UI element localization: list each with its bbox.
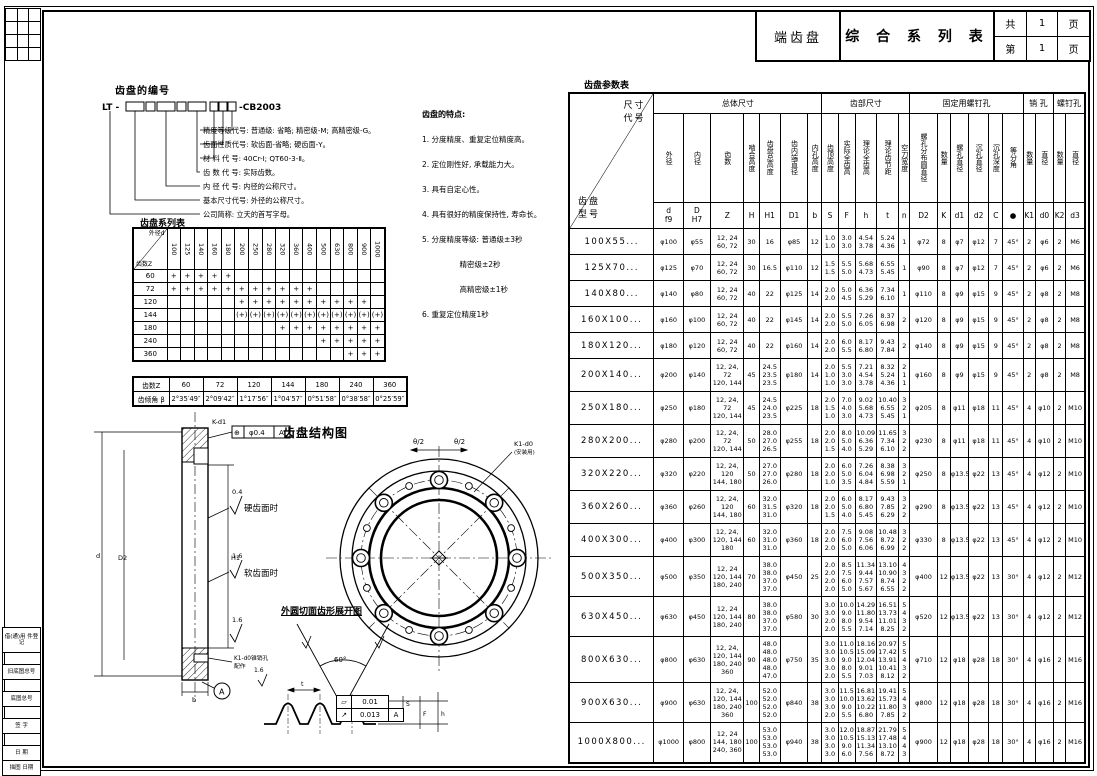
cell bbox=[371, 270, 385, 283]
series-corner-cell: 外径d 齿数Z bbox=[133, 228, 167, 270]
cell: 8 bbox=[937, 425, 950, 458]
cell: 5.24 4.36 bbox=[876, 229, 898, 255]
revision-grid bbox=[5, 8, 41, 61]
code-desc: 齿面性质代号: 软齿面-省略; 硬齿面-Y。 bbox=[203, 140, 330, 149]
cell: φ630 bbox=[683, 683, 710, 723]
series-col: 160 bbox=[208, 228, 222, 270]
cell: 12 bbox=[937, 683, 950, 723]
pin-hole-note2: 配作 bbox=[234, 662, 246, 670]
cell: M10 bbox=[1066, 458, 1085, 491]
cell: + bbox=[167, 270, 181, 283]
cell bbox=[208, 335, 222, 348]
runout-datum: A bbox=[388, 708, 404, 722]
cell: 120 bbox=[237, 377, 271, 392]
cell bbox=[262, 270, 276, 283]
cell: 45° bbox=[1003, 392, 1023, 425]
cell: 3 2 1 bbox=[899, 392, 910, 425]
cell bbox=[276, 335, 290, 348]
cell: φ320 bbox=[654, 458, 683, 491]
col-header: 内孔高度 bbox=[808, 113, 822, 202]
cell: 12.0 10.5 9.0 6.0 bbox=[838, 723, 855, 763]
cell: M10 bbox=[1066, 425, 1085, 458]
cell: + bbox=[303, 296, 317, 309]
flatness-symbol: ▱ bbox=[336, 695, 352, 709]
cell bbox=[371, 283, 385, 296]
cell: 2 bbox=[1054, 392, 1066, 425]
cell: 45° bbox=[1003, 359, 1023, 392]
cell: φ22 bbox=[969, 491, 989, 524]
margin-block: 描图 日期 bbox=[2, 760, 41, 776]
col-header: 直径 bbox=[1066, 113, 1085, 202]
table-row: 280X200...φ280φ20012, 24, 72 120, 144502… bbox=[569, 425, 1085, 458]
cell: 5.5 3.0 3.0 bbox=[838, 359, 855, 392]
cell: 9 bbox=[989, 307, 1003, 333]
cell bbox=[208, 322, 222, 335]
structure-callout: K1-d0 bbox=[514, 440, 533, 448]
cell: 2 bbox=[1023, 307, 1035, 333]
k-d1-label: K-d1 bbox=[212, 418, 226, 426]
cell: φ400 bbox=[654, 524, 683, 557]
cell: + bbox=[357, 335, 371, 348]
cell: + bbox=[371, 335, 385, 348]
position-symbol: ⊕ bbox=[234, 429, 240, 437]
symbol-cell: t bbox=[876, 202, 898, 228]
cell: 4 bbox=[1023, 491, 1035, 524]
cell: φ18 bbox=[950, 723, 968, 763]
cell: 2 bbox=[1054, 229, 1066, 255]
cell: φ11 bbox=[950, 425, 968, 458]
cell: 8 bbox=[937, 491, 950, 524]
cell: 45° bbox=[1003, 524, 1023, 557]
page-current-row: 第 1 页 bbox=[995, 37, 1089, 61]
cell: 45° bbox=[1003, 281, 1023, 307]
cell: φ12 bbox=[1035, 458, 1053, 491]
cell bbox=[194, 296, 208, 309]
page-info: 共 1 页 第 1 页 bbox=[995, 12, 1089, 60]
cell bbox=[344, 270, 358, 283]
row-header-cell: 360X260... bbox=[569, 491, 654, 524]
param-corner-top: 尺寸 代号 bbox=[623, 100, 645, 126]
cell bbox=[249, 322, 263, 335]
row-header-cell: 250X180... bbox=[569, 392, 654, 425]
cell: 12 bbox=[808, 229, 822, 255]
cell: 9.43 7.84 bbox=[876, 333, 898, 359]
cell: + bbox=[330, 322, 344, 335]
cell bbox=[221, 348, 235, 362]
cell: φ140 bbox=[654, 281, 683, 307]
series-col: 250 bbox=[249, 228, 263, 270]
cell: 8 bbox=[937, 359, 950, 392]
cell: 30° bbox=[1003, 637, 1023, 683]
position-tolerance: φ0.4 bbox=[249, 429, 265, 437]
cell: 32.0 31.0 31.0 bbox=[759, 524, 780, 557]
cell: φ200 bbox=[683, 425, 710, 458]
margin-block: 签 字 bbox=[2, 718, 41, 734]
cell: 2 bbox=[1054, 255, 1066, 281]
cell: 8.38 6.98 5.59 bbox=[876, 458, 898, 491]
soft-face-label: 软齿面时 bbox=[244, 568, 279, 579]
cell: M8 bbox=[1066, 359, 1085, 392]
cell bbox=[289, 348, 303, 362]
cell: 3 2 2 bbox=[899, 491, 910, 524]
table-row: 200X140...φ200φ14012, 24, 72 120, 144452… bbox=[569, 359, 1085, 392]
cell: 10.40 6.55 5.45 bbox=[876, 392, 898, 425]
feature-item: 3. 具有自定心性。 bbox=[422, 184, 587, 197]
row-header-cell: 400X300... bbox=[569, 524, 654, 557]
cell: (+) bbox=[289, 309, 303, 322]
cell: φ9 bbox=[950, 307, 968, 333]
cell: φ28 bbox=[969, 683, 989, 723]
cell: 30° bbox=[1003, 683, 1023, 723]
cell: φ280 bbox=[780, 458, 807, 491]
cell: φ100 bbox=[683, 307, 710, 333]
cell: 60 bbox=[169, 377, 203, 392]
cell: 0°38′58″ bbox=[339, 392, 373, 407]
cell: + bbox=[317, 322, 331, 335]
cell: 1 bbox=[899, 255, 910, 281]
cell: φ800 bbox=[654, 637, 683, 683]
cell: φ360 bbox=[654, 491, 683, 524]
cell: 2 bbox=[1054, 637, 1066, 683]
cell: + bbox=[235, 296, 249, 309]
row-header-cell: 72 bbox=[133, 283, 167, 296]
cell: 2.0 2.0 2.0 bbox=[822, 524, 838, 557]
cell: φ13.5 bbox=[950, 524, 968, 557]
cell: φ8 bbox=[1035, 281, 1053, 307]
cell bbox=[181, 309, 195, 322]
col-header: 齿盘总高度 bbox=[759, 113, 780, 202]
symbol-cell: H1 bbox=[759, 202, 780, 228]
cell: 50 bbox=[744, 425, 759, 458]
cell: 4 bbox=[1023, 683, 1035, 723]
cell: 18 bbox=[808, 524, 822, 557]
cell: φ180 bbox=[683, 392, 710, 425]
col-header: 齿顶高度 bbox=[822, 113, 838, 202]
cell: 1°17′56″ bbox=[237, 392, 271, 407]
cell: 5 5 4 3 2 bbox=[899, 637, 910, 683]
cell: φ13.5 bbox=[950, 458, 968, 491]
cell: φ500 bbox=[654, 557, 683, 597]
cell: φ12 bbox=[1035, 524, 1053, 557]
margin-block: 借(通)用 件登记 bbox=[2, 627, 41, 653]
symbol-cell: F bbox=[838, 202, 855, 228]
cell: φ12 bbox=[969, 229, 989, 255]
cell: 2.0 2.0 bbox=[822, 307, 838, 333]
cell: φ450 bbox=[683, 597, 710, 637]
cell: 11.65 7.34 6.10 bbox=[876, 425, 898, 458]
cell: φ290 bbox=[910, 491, 937, 524]
cell: 53.0 53.0 53.0 53.0 bbox=[759, 723, 780, 763]
cell: 38.0 38.0 37.0 37.0 bbox=[759, 557, 780, 597]
dim-f-label: F bbox=[423, 711, 427, 718]
table-row: 360+++ bbox=[133, 348, 385, 362]
cell: 9.08 7.56 6.06 bbox=[855, 524, 876, 557]
cell: + bbox=[289, 283, 303, 296]
table-row: 125X70...φ125φ7012, 24 60, 723016.5φ1101… bbox=[569, 255, 1085, 281]
table-row: 320X220...φ320φ22012, 24, 120 144, 18050… bbox=[569, 458, 1085, 491]
row-header-cell: 500X350... bbox=[569, 557, 654, 597]
structure-callout-note: (安装用) bbox=[514, 448, 535, 456]
cell: φ22 bbox=[969, 524, 989, 557]
cell bbox=[181, 296, 195, 309]
cell bbox=[330, 348, 344, 362]
cell: 4 bbox=[1023, 557, 1035, 597]
cell: 38.0 38.0 37.0 37.0 bbox=[759, 597, 780, 637]
cell: φ120 bbox=[683, 333, 710, 359]
cell bbox=[357, 283, 371, 296]
cell: 13 bbox=[989, 557, 1003, 597]
col-header: 等分角 bbox=[1003, 113, 1023, 202]
cell: 30 bbox=[744, 255, 759, 281]
runout-symbol: ↗ bbox=[336, 708, 352, 722]
cell bbox=[303, 335, 317, 348]
cell: φ8 bbox=[1035, 307, 1053, 333]
cell: 8 bbox=[937, 255, 950, 281]
table-row: 144(+)(+)(+)(+)(+)(+)(+)(+)(+)(+)(+) bbox=[133, 309, 385, 322]
cell: φ12 bbox=[1035, 597, 1053, 637]
cell bbox=[167, 348, 181, 362]
margin-block: 旧底图总号 bbox=[2, 664, 41, 680]
cell: 4 3 2 2 bbox=[899, 557, 910, 597]
cell: φ13.5 bbox=[950, 557, 968, 597]
pages-unit: 页 bbox=[1057, 12, 1089, 36]
cell: 3.0 3.0 2.0 2.0 bbox=[822, 597, 838, 637]
cell: M10 bbox=[1066, 491, 1085, 524]
cell: φ125 bbox=[654, 255, 683, 281]
cell bbox=[167, 335, 181, 348]
cell: φ80 bbox=[683, 281, 710, 307]
cell: 2.0 2.0 1.5 bbox=[822, 491, 838, 524]
cell: 2 bbox=[1023, 255, 1035, 281]
symbol-cell: d1 bbox=[950, 202, 968, 228]
cell bbox=[181, 322, 195, 335]
cell: + bbox=[221, 270, 235, 283]
cell bbox=[208, 348, 222, 362]
dim-h-label: h bbox=[441, 711, 445, 718]
theta-half-left: θ/2 bbox=[413, 438, 424, 446]
cell: M6 bbox=[1066, 255, 1085, 281]
cell: 30 bbox=[744, 229, 759, 255]
cell: φ220 bbox=[683, 458, 710, 491]
cell: φ6 bbox=[1035, 229, 1053, 255]
row-header-cell: 180X120... bbox=[569, 333, 654, 359]
series-col: 1000 bbox=[371, 228, 385, 270]
cell: φ90 bbox=[910, 255, 937, 281]
group-tooth: 齿部尺寸 bbox=[822, 93, 910, 113]
cell: 2 bbox=[1054, 307, 1066, 333]
cell bbox=[262, 348, 276, 362]
cell: φ225 bbox=[780, 392, 807, 425]
table-row: 900X630...φ900φ63012, 24, 120, 144 180, … bbox=[569, 683, 1085, 723]
cell: M16 bbox=[1066, 723, 1085, 763]
cell: 16.51 13.73 11.01 8.25 bbox=[876, 597, 898, 637]
cell: φ205 bbox=[910, 392, 937, 425]
cell: + bbox=[181, 270, 195, 283]
cell bbox=[276, 348, 290, 362]
cell: φ180 bbox=[654, 333, 683, 359]
cell: φ580 bbox=[780, 597, 807, 637]
cell bbox=[235, 322, 249, 335]
cell: φ360 bbox=[780, 524, 807, 557]
cell: 2°09′42″ bbox=[203, 392, 237, 407]
code-desc: 精度等级代号: 普通级: 省略; 精密级-M; 高精密级-G。 bbox=[203, 126, 375, 135]
row-header-cell: 360 bbox=[133, 348, 167, 362]
cell: φ13.5 bbox=[950, 597, 968, 637]
dim-t-label: t bbox=[301, 680, 304, 688]
tolerance-frames: ▱ 0.01 ↗ 0.013 A bbox=[337, 696, 404, 722]
cell: + bbox=[249, 296, 263, 309]
series-col: 900 bbox=[357, 228, 371, 270]
col-header: 沉孔直径 bbox=[969, 113, 989, 202]
cell: 2 bbox=[1054, 281, 1066, 307]
cell: 1 bbox=[899, 281, 910, 307]
series-col: 800 bbox=[344, 228, 358, 270]
cell: + bbox=[276, 283, 290, 296]
cell: 10.09 6.36 5.29 bbox=[855, 425, 876, 458]
cell: 100 bbox=[744, 723, 759, 763]
cell: φ110 bbox=[780, 255, 807, 281]
cell: 2 bbox=[1023, 281, 1035, 307]
cell: φ15 bbox=[969, 359, 989, 392]
cell: (+) bbox=[357, 309, 371, 322]
tooth-angle-table: 齿数Z6072120144180240360齿倾角 β2°35′49″2°09′… bbox=[132, 376, 408, 407]
cell bbox=[289, 270, 303, 283]
col-header: 数量 bbox=[937, 113, 950, 202]
cell: φ320 bbox=[780, 491, 807, 524]
cell bbox=[249, 335, 263, 348]
col-header: 空刀宽度 bbox=[899, 113, 910, 202]
symbol-cell: D H7 bbox=[683, 202, 710, 228]
cell: 12, 24, 72 120, 144 bbox=[711, 425, 744, 458]
cell: 0°25′59″ bbox=[373, 392, 407, 407]
cell: φ260 bbox=[683, 491, 710, 524]
cell: 2 bbox=[899, 307, 910, 333]
cell: 360 bbox=[373, 377, 407, 392]
cell bbox=[303, 270, 317, 283]
cell bbox=[208, 309, 222, 322]
col-header: 内径 bbox=[683, 113, 710, 202]
table-row: 100X55...φ100φ5512, 24 60, 723016φ85121.… bbox=[569, 229, 1085, 255]
cell: 8 bbox=[937, 333, 950, 359]
cell: φ22 bbox=[969, 557, 989, 597]
cell: 144 bbox=[271, 377, 305, 392]
col-header: 螺孔直径 bbox=[950, 113, 968, 202]
cell: 13.10 10.90 8.74 6.55 bbox=[876, 557, 898, 597]
cell: φ450 bbox=[780, 557, 807, 597]
cell: 30° bbox=[1003, 723, 1023, 763]
cell: + bbox=[344, 348, 358, 362]
col-header: 数量 bbox=[1054, 113, 1066, 202]
row-header-cell: 60 bbox=[133, 270, 167, 283]
series-col: 280 bbox=[262, 228, 276, 270]
cell: 12 bbox=[937, 557, 950, 597]
cell: 18 bbox=[989, 683, 1003, 723]
cell bbox=[208, 296, 222, 309]
cell: M8 bbox=[1066, 307, 1085, 333]
cell: 8 bbox=[937, 281, 950, 307]
table-row: 1000X800...φ1000φ80012, 24 144, 180 240,… bbox=[569, 723, 1085, 763]
cell: 30° bbox=[1003, 557, 1023, 597]
cell: φ72 bbox=[910, 229, 937, 255]
cell: 2 bbox=[899, 333, 910, 359]
series-table: 外径d 齿数Z 100 125 140 160 180 200 250 280 … bbox=[132, 227, 386, 362]
cell: φ145 bbox=[780, 307, 807, 333]
cell: φ180 bbox=[780, 359, 807, 392]
table-row: 140X80...φ140φ8012, 24 60, 724022φ125142… bbox=[569, 281, 1085, 307]
cell: + bbox=[344, 296, 358, 309]
cell: + bbox=[181, 283, 195, 296]
cell: 4.54 3.78 bbox=[855, 229, 876, 255]
cell: + bbox=[317, 335, 331, 348]
cell: 14 bbox=[808, 281, 822, 307]
cell: 2 bbox=[1054, 491, 1066, 524]
cell: + bbox=[208, 283, 222, 296]
cell: φ250 bbox=[654, 392, 683, 425]
cell: φ12 bbox=[1035, 491, 1053, 524]
cell: φ16 bbox=[1035, 683, 1053, 723]
page-current-label: 第 bbox=[995, 37, 1026, 61]
cell: + bbox=[344, 322, 358, 335]
cell: 19.41 15.73 11.80 7.85 bbox=[876, 683, 898, 723]
col-header: 螺孔分布圆直径 bbox=[910, 113, 937, 202]
cell: 2 bbox=[1054, 557, 1066, 597]
series-col: 200 bbox=[235, 228, 249, 270]
table-row: 240+++++ bbox=[133, 335, 385, 348]
series-col: 630 bbox=[330, 228, 344, 270]
row-header-cell: 160X100... bbox=[569, 307, 654, 333]
symbol-cell: h bbox=[855, 202, 876, 228]
cell: φ9 bbox=[950, 359, 968, 392]
cell bbox=[344, 283, 358, 296]
cell: φ18 bbox=[969, 392, 989, 425]
cell: 13 bbox=[989, 458, 1003, 491]
pages-unit: 页 bbox=[1057, 37, 1089, 61]
cell: 2 bbox=[1054, 683, 1066, 723]
cell: 6.55 5.45 bbox=[876, 255, 898, 281]
pages-total-row: 共 1 页 bbox=[995, 12, 1089, 37]
symbol-cell: H bbox=[744, 202, 759, 228]
cell: φ160 bbox=[654, 307, 683, 333]
cell: φ22 bbox=[969, 458, 989, 491]
ra-hard-value: 0.4 bbox=[232, 488, 242, 496]
series-col: 140 bbox=[194, 228, 208, 270]
cell: 12, 24 60, 72 bbox=[711, 281, 744, 307]
cell bbox=[249, 270, 263, 283]
cell: φ520 bbox=[910, 597, 937, 637]
cell: φ630 bbox=[683, 637, 710, 683]
symbol-cell: S bbox=[822, 202, 838, 228]
cell: 8.17 6.80 5.45 bbox=[855, 491, 876, 524]
cell: + bbox=[303, 322, 317, 335]
cell: 5.5 5.0 bbox=[838, 255, 855, 281]
development-drawing: 60° t S F h 1.6 bbox=[248, 616, 463, 754]
runout-value: 0.013 bbox=[351, 708, 389, 722]
cell: + bbox=[330, 296, 344, 309]
table-row: 180X120...φ180φ12012, 24 60, 724022φ1601… bbox=[569, 333, 1085, 359]
code-prefix: LT - bbox=[102, 103, 120, 113]
cell: 14 bbox=[808, 359, 822, 392]
cell: 1.0 1.0 bbox=[822, 229, 838, 255]
cell: 72 bbox=[203, 377, 237, 392]
cell: (+) bbox=[317, 309, 331, 322]
cell bbox=[235, 348, 249, 362]
cell: 6.36 5.29 bbox=[855, 281, 876, 307]
cell: + bbox=[330, 335, 344, 348]
cell: 7.34 6.10 bbox=[876, 281, 898, 307]
table-row: 800X630...φ800φ63012, 24, 120, 144 180, … bbox=[569, 637, 1085, 683]
cell: 8 bbox=[937, 229, 950, 255]
cell: 5 4 4 3 bbox=[899, 723, 910, 763]
